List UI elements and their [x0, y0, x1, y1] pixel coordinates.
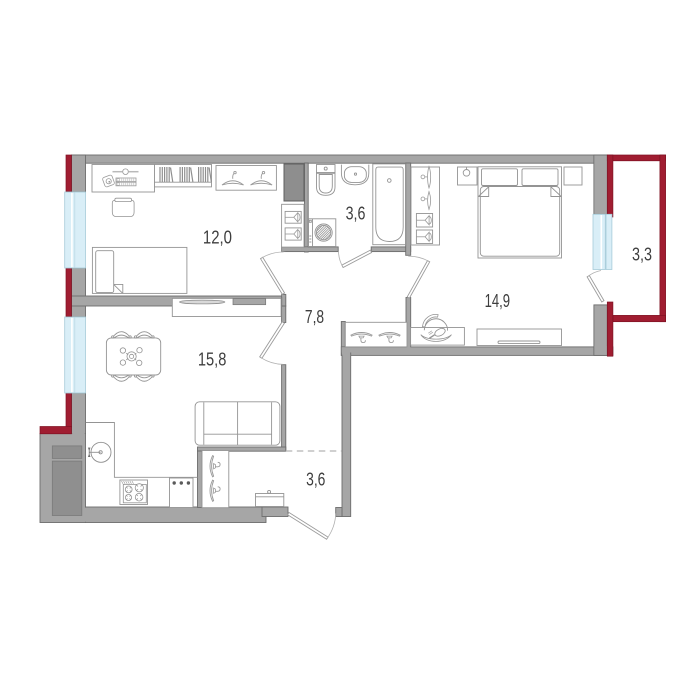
svg-text:7,8: 7,8 [305, 307, 324, 327]
svg-text:3,6: 3,6 [346, 203, 366, 223]
svg-text:12,0: 12,0 [203, 228, 232, 248]
svg-text:15,8: 15,8 [198, 350, 227, 370]
svg-text:3,6: 3,6 [306, 469, 325, 489]
svg-text:14,9: 14,9 [485, 291, 511, 311]
svg-text:3,3: 3,3 [632, 245, 652, 265]
